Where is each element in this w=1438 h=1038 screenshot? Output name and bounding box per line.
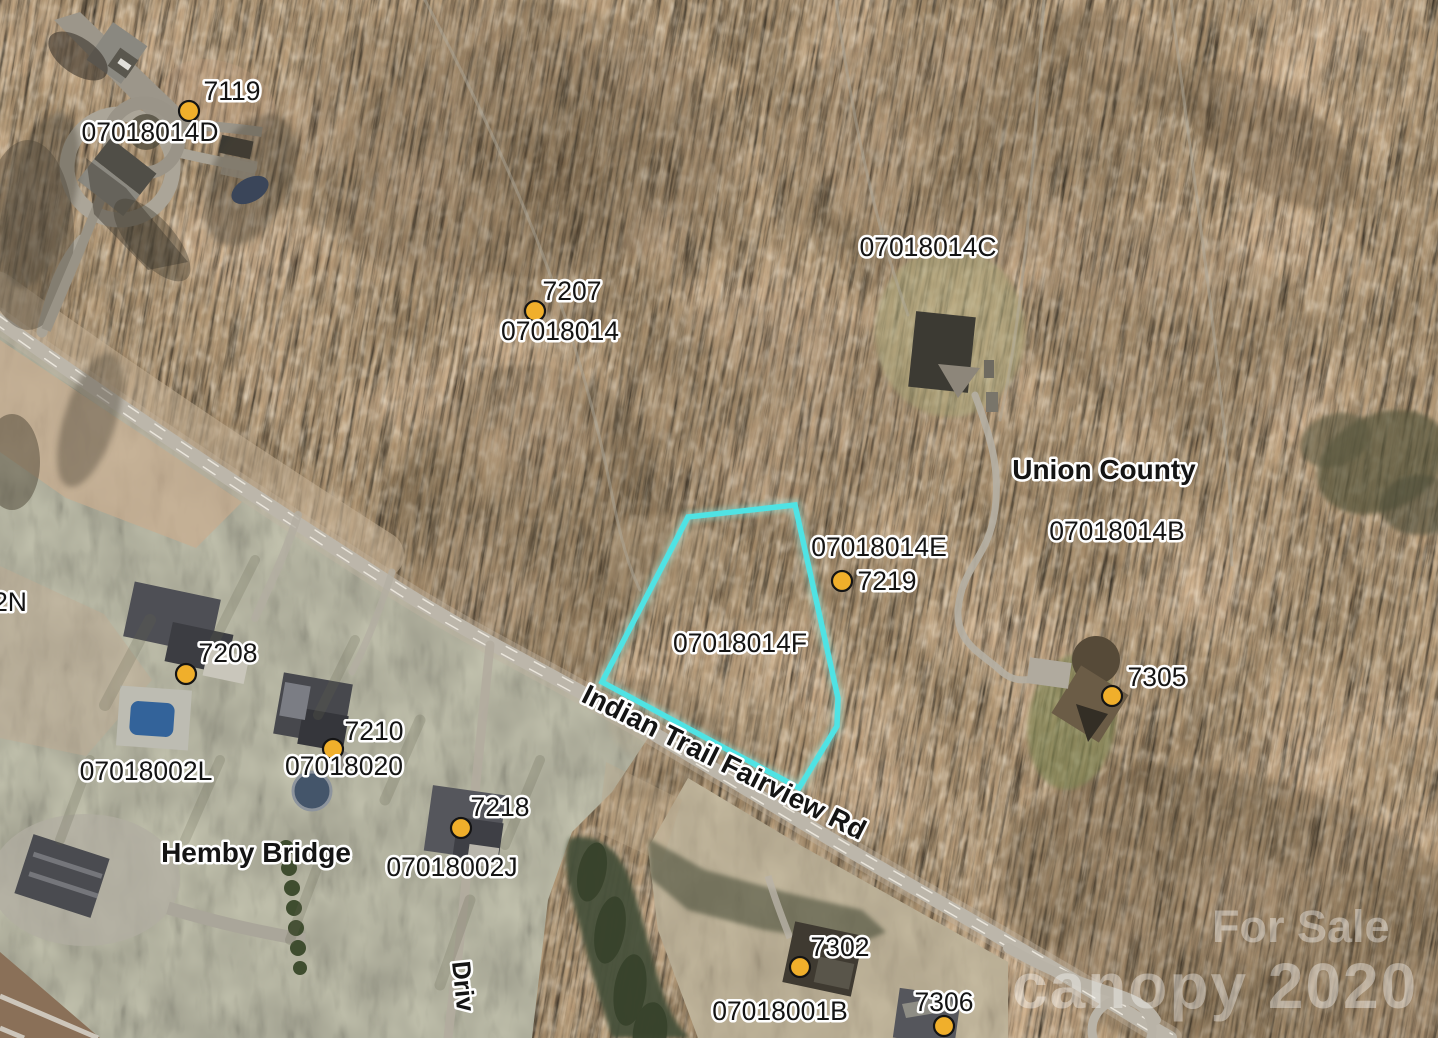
svg-text:7119: 7119 [204, 76, 261, 106]
svg-text:Driv: Driv [446, 959, 481, 1013]
svg-text:7210: 7210 [345, 716, 404, 746]
svg-text:07018014: 07018014 [501, 316, 619, 346]
svg-text:07018014C: 07018014C [859, 232, 996, 262]
svg-text:7306: 7306 [915, 987, 974, 1017]
svg-text:Union County: Union County [1012, 454, 1196, 485]
svg-text:For Sale: For Sale [1212, 901, 1390, 952]
svg-text:07018002J: 07018002J [386, 852, 517, 882]
svg-text:07018014F: 07018014F [673, 628, 807, 658]
svg-text:Hemby Bridge: Hemby Bridge [161, 837, 351, 868]
svg-text:7218: 7218 [471, 792, 530, 822]
svg-text:7208: 7208 [199, 638, 258, 668]
svg-text:7207: 7207 [543, 276, 602, 306]
svg-text:2N: 2N [0, 587, 27, 617]
svg-text:07018014B: 07018014B [1049, 516, 1185, 546]
svg-text:07018014E: 07018014E [811, 532, 947, 562]
svg-text:7305: 7305 [1128, 662, 1187, 692]
svg-text:07018020: 07018020 [285, 751, 403, 781]
svg-text:07018014D: 07018014D [81, 117, 218, 147]
svg-text:7302: 7302 [811, 932, 870, 962]
svg-text:07018002L: 07018002L [80, 756, 213, 786]
svg-text:07018001B: 07018001B [712, 996, 848, 1026]
svg-text:7219: 7219 [858, 566, 917, 596]
svg-text:canopy 2020: canopy 2020 [1012, 950, 1418, 1022]
